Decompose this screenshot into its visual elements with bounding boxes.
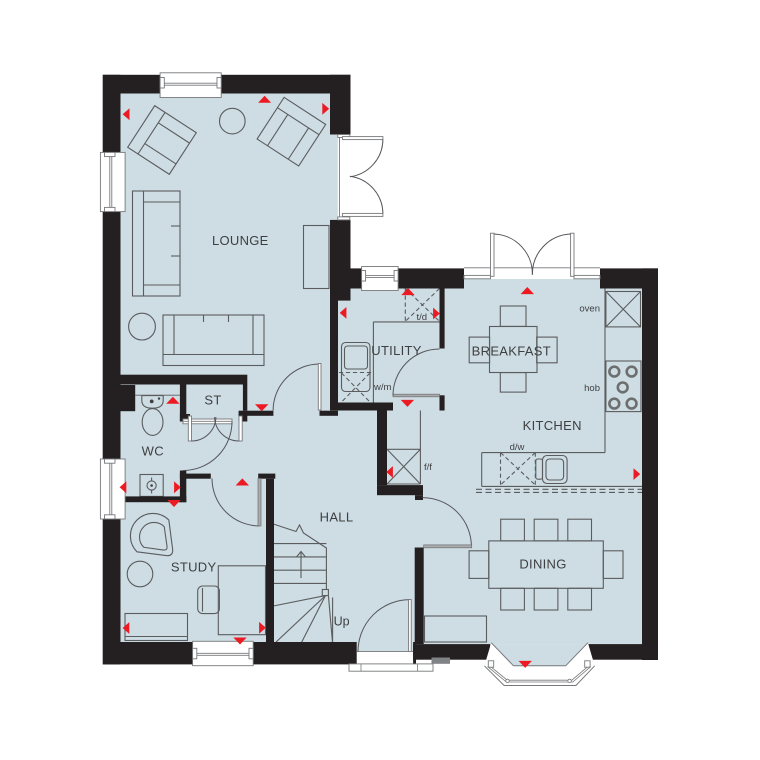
svg-text:hob: hob bbox=[584, 383, 600, 394]
svg-text:LOUNGE: LOUNGE bbox=[212, 233, 269, 248]
svg-text:oven: oven bbox=[579, 303, 600, 314]
svg-text:w/m: w/m bbox=[373, 382, 392, 393]
svg-text:STUDY: STUDY bbox=[171, 559, 217, 574]
svg-text:UTILITY: UTILITY bbox=[371, 343, 422, 358]
svg-text:WC: WC bbox=[142, 444, 164, 459]
svg-text:DINING: DINING bbox=[519, 556, 566, 571]
svg-text:KITCHEN: KITCHEN bbox=[523, 418, 582, 433]
svg-text:ST: ST bbox=[204, 393, 221, 408]
svg-text:f/f: f/f bbox=[424, 462, 432, 473]
svg-text:t/d: t/d bbox=[417, 312, 428, 323]
svg-text:Up: Up bbox=[334, 614, 350, 628]
svg-text:HALL: HALL bbox=[320, 509, 354, 524]
svg-text:BREAKFAST: BREAKFAST bbox=[472, 344, 551, 359]
svg-text:d/w: d/w bbox=[510, 442, 525, 453]
